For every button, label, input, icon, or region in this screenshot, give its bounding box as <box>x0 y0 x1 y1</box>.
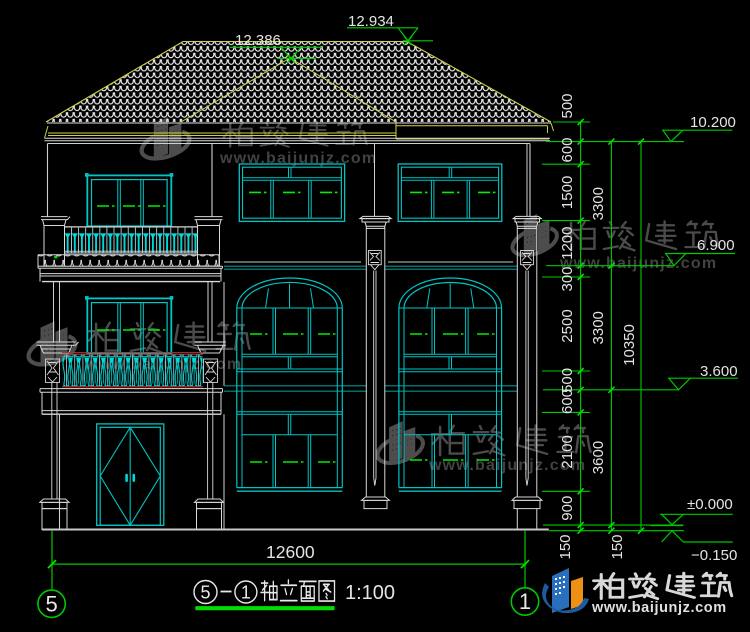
svg-text:12600: 12600 <box>266 542 315 562</box>
svg-text:2500: 2500 <box>559 309 576 342</box>
svg-text:5: 5 <box>200 583 210 603</box>
svg-text:−0.150: −0.150 <box>691 547 737 564</box>
svg-text:10.200: 10.200 <box>690 114 736 131</box>
svg-text:300: 300 <box>559 266 576 291</box>
svg-text:500: 500 <box>559 93 576 118</box>
svg-text:3.600: 3.600 <box>700 363 738 380</box>
svg-text:150: 150 <box>557 534 574 559</box>
svg-text:1:100: 1:100 <box>345 582 395 604</box>
svg-text:www.baijunjz.com: www.baijunjz.com <box>591 600 727 616</box>
svg-text:5: 5 <box>45 592 57 617</box>
svg-text:150: 150 <box>609 534 626 559</box>
svg-text:6.900: 6.900 <box>697 237 735 254</box>
svg-text:900: 900 <box>559 496 576 521</box>
svg-text:3300: 3300 <box>590 311 607 344</box>
svg-text:10350: 10350 <box>621 324 638 366</box>
svg-text:3600: 3600 <box>590 441 607 474</box>
svg-text:1: 1 <box>519 589 531 614</box>
svg-text:1500: 1500 <box>559 176 576 209</box>
svg-text:1200: 1200 <box>559 227 576 260</box>
svg-text:600: 600 <box>559 389 576 414</box>
svg-text:2100: 2100 <box>559 435 576 468</box>
svg-text:±0.000: ±0.000 <box>687 496 733 513</box>
svg-text:600: 600 <box>559 137 576 162</box>
svg-text:12.386: 12.386 <box>235 32 281 49</box>
svg-text:1: 1 <box>241 583 251 603</box>
svg-text:3300: 3300 <box>590 187 607 220</box>
